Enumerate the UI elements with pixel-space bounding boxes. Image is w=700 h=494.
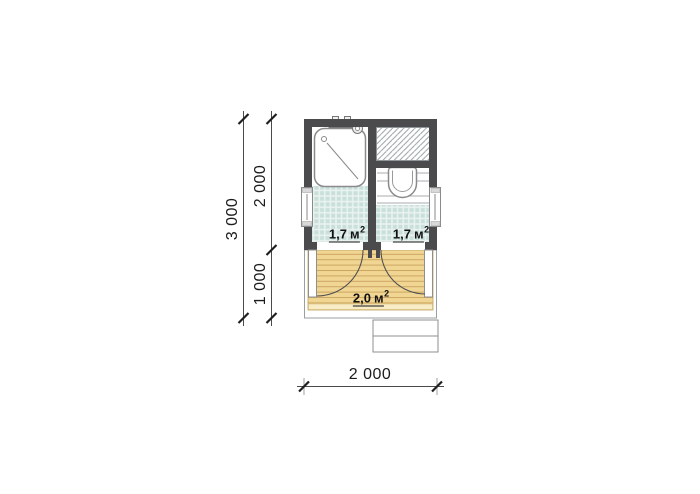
toilet-icon bbox=[389, 168, 417, 198]
area-unit-sup: 2 bbox=[384, 289, 389, 299]
area-unit: м bbox=[374, 291, 384, 306]
dim-text-rooms-depth: 2 000 bbox=[252, 165, 270, 208]
window-right-icon bbox=[430, 188, 441, 227]
area-unit: м bbox=[414, 227, 424, 242]
dim-text-width: 2 000 bbox=[349, 366, 392, 384]
door-left-leaf bbox=[309, 250, 317, 297]
area-label-shower-room: 1,7м2 bbox=[329, 225, 365, 242]
window-left-icon bbox=[302, 188, 313, 227]
area-unit-sup: 2 bbox=[360, 225, 365, 235]
entrance-step bbox=[373, 320, 438, 352]
area-label-porch: 2,0м2 bbox=[353, 289, 389, 306]
area-value: 1,7 bbox=[393, 227, 411, 242]
door-right-leaf bbox=[425, 250, 433, 297]
area-label-toilet-room: 1,7м2 bbox=[393, 225, 429, 242]
dim-text-total-depth: 3 000 bbox=[224, 198, 242, 241]
wall-partition-toilet bbox=[376, 161, 430, 168]
hatched-shelf-block bbox=[377, 128, 431, 161]
door-jamb-right bbox=[376, 250, 380, 258]
door-jamb-left bbox=[368, 250, 372, 258]
wall-top bbox=[304, 119, 437, 127]
wall-right bbox=[429, 119, 437, 250]
area-unit: м bbox=[350, 227, 360, 242]
area-value: 2,0 bbox=[353, 291, 371, 306]
shower-tray-icon bbox=[315, 129, 366, 187]
wall-left bbox=[304, 119, 312, 250]
floor-plan-canvas: 3 000 2 000 1 000 2 000 1,7м2 1,7м2 2,0м… bbox=[0, 0, 700, 494]
porch-platform bbox=[305, 250, 437, 318]
dim-text-porch-depth: 1 000 bbox=[252, 263, 270, 306]
area-unit-sup: 2 bbox=[424, 225, 429, 235]
floor-plan-drawing bbox=[0, 0, 700, 494]
wall-middle bbox=[368, 127, 376, 250]
area-value: 1,7 bbox=[329, 227, 347, 242]
